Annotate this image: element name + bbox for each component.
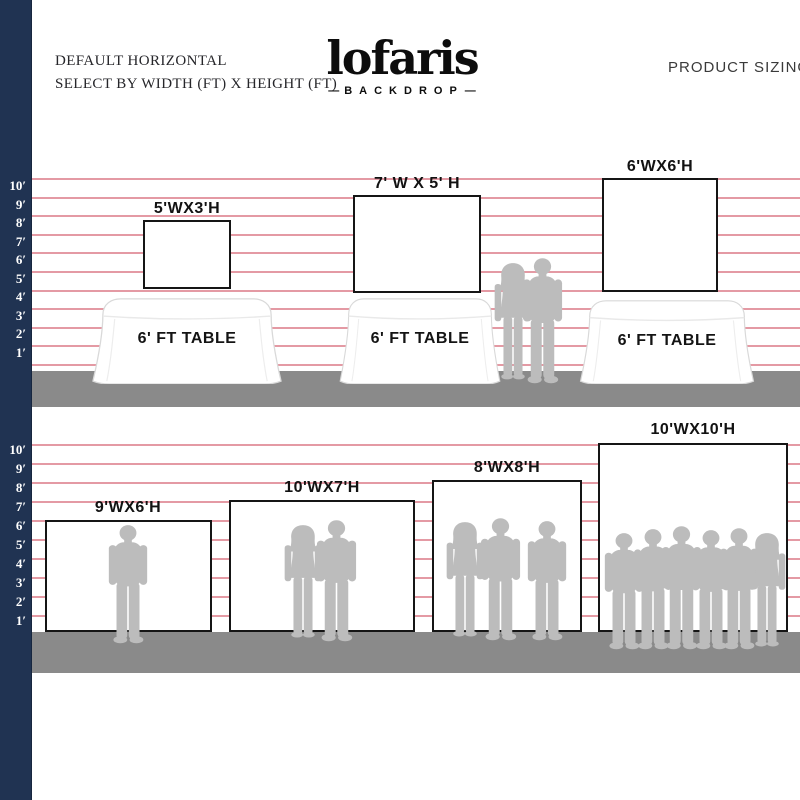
logo-sub-text: BACKDROP [344, 85, 464, 97]
header-left: DEFAULT HORIZONTAL SELECT BY WIDTH (FT) … [55, 50, 337, 95]
header-line1: DEFAULT HORIZONTAL [55, 50, 337, 73]
woman-silhouette [745, 531, 789, 650]
ruler-label: 6′ [0, 253, 26, 267]
header-line2: SELECT BY WIDTH (FT) X HEIGHT (FT) [55, 73, 337, 96]
backdrop-size-label: 7' W X 5' H [374, 175, 460, 193]
ruler-label: 10′ [0, 443, 26, 457]
backdrop-size-label: 10'WX10'H [650, 421, 735, 439]
page-title: PRODUCT SIZING [668, 59, 800, 76]
table-label: 6' FT TABLE [618, 332, 717, 350]
ruler-label: 9′ [0, 198, 26, 212]
ruler-label: 10′ [0, 179, 26, 193]
backdrop-6x6 [602, 178, 718, 292]
backdrop-size-label: 10'WX7'H [284, 479, 360, 497]
product-sizing-chart: DEFAULT HORIZONTAL SELECT BY WIDTH (FT) … [0, 0, 800, 800]
backdrop-7x5 [353, 195, 481, 293]
backdrop-size-label: 6'WX6'H [627, 158, 693, 176]
ruler-strip [0, 0, 32, 800]
ruler-label: 4′ [0, 557, 26, 571]
backdrop-size-label: 9'WX6'H [95, 499, 161, 517]
man-silhouette [313, 518, 360, 642]
ruler-label: 8′ [0, 481, 26, 495]
ruler-label: 5′ [0, 538, 26, 552]
logo-dash-left: — [328, 85, 339, 97]
table-label: 6' FT TABLE [371, 330, 470, 348]
ruler-label: 5′ [0, 272, 26, 286]
backdrop-5x3 [143, 220, 231, 289]
ruler-label: 8′ [0, 216, 26, 230]
backdrop-size-label: 5'WX3'H [154, 200, 220, 218]
man-silhouette [105, 523, 151, 644]
brand-logo: lofaris — BACKDROP — [316, 34, 488, 97]
ruler-label: 7′ [0, 500, 26, 514]
table: 6' FT TABLE [88, 296, 286, 384]
table: 6' FT TABLE [336, 296, 504, 384]
table: 6' FT TABLE [576, 298, 758, 384]
man-silhouette [524, 519, 570, 641]
table-label: 6' FT TABLE [138, 330, 237, 348]
ruler-label: 9′ [0, 462, 26, 476]
logo-subtitle: — BACKDROP — [316, 85, 488, 97]
ruler-label: 6′ [0, 519, 26, 533]
logo-dash-right: — [465, 85, 476, 97]
ruler-label: 7′ [0, 235, 26, 249]
ruler-label: 2′ [0, 595, 26, 609]
ruler-label: 2′ [0, 327, 26, 341]
ruler-label: 3′ [0, 309, 26, 323]
ruler-label: 1′ [0, 614, 26, 628]
man-silhouette [519, 256, 566, 384]
backdrop-size-label: 8'WX8'H [474, 459, 540, 477]
logo-wordmark: lofaris [316, 34, 488, 82]
man-silhouette [477, 516, 524, 641]
ruler-label: 4′ [0, 290, 26, 304]
ruler-label: 1′ [0, 346, 26, 360]
ruler-label: 3′ [0, 576, 26, 590]
